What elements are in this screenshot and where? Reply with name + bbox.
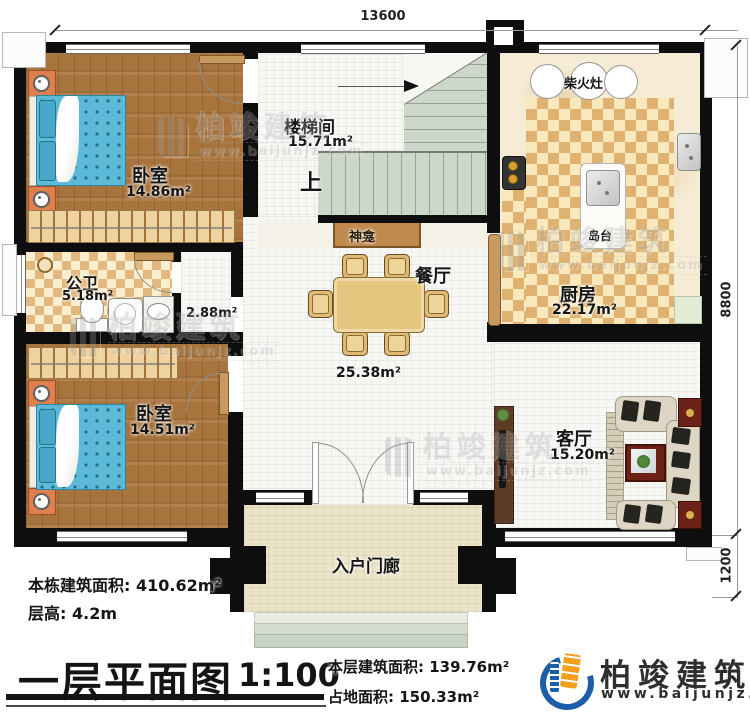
- gas-stove-burner2-icon: [508, 174, 518, 184]
- hallway-area: 2.88m²: [186, 306, 237, 321]
- bathroom-area: 5.18m²: [62, 289, 113, 304]
- floor-area-value: 139.76m²: [429, 658, 509, 676]
- floor-height-value: 4.2m: [72, 604, 117, 623]
- bathroom-sink-icon: [147, 303, 170, 320]
- brand-logo-icon: [540, 650, 594, 704]
- sofa-main-cushion2: [671, 451, 691, 469]
- side-table-bottom: [678, 501, 702, 529]
- bedroom2-lamp-top-icon: [33, 385, 50, 402]
- gas-stove-burner1-icon: [508, 161, 518, 171]
- kitchen-area: 22.17m²: [552, 302, 617, 318]
- porch-pillar-right-step: [458, 546, 482, 584]
- stairs-arrow-icon: [404, 80, 419, 92]
- wall-bath-bed2: [14, 332, 243, 344]
- living-area: 15.20m²: [550, 447, 615, 463]
- window-porch-right: [420, 492, 468, 503]
- bedroom1-lamp-bottom-icon: [33, 191, 50, 208]
- kitchen-island-sink: [586, 170, 620, 206]
- porch-pillar-left-bar: [230, 505, 244, 612]
- bedroom2-lamp-bottom-icon: [33, 493, 50, 510]
- floor-area-label: 本层建筑面积:: [328, 658, 424, 676]
- title-rule-heavy: [6, 694, 324, 700]
- sofa-main-cushion3: [671, 477, 691, 495]
- wall-kitchen-left-a: [487, 53, 500, 233]
- dim-right-main-value: 8800: [720, 266, 735, 334]
- bedroom1-pillow1: [39, 100, 56, 138]
- wall-right: [700, 42, 712, 547]
- stairs-direction-line: [338, 86, 404, 87]
- wood-stove-burner3: [604, 65, 638, 99]
- bedroom2-door-leaf: [219, 372, 229, 415]
- entry-door-leaf-right: [407, 442, 414, 504]
- bathroom-drain-icon: [37, 257, 53, 273]
- ac-platform-top-left: [2, 32, 46, 68]
- floor-area-line: 本层建筑面积: 139.76m²: [328, 656, 509, 677]
- wood-stove-burner1: [530, 64, 565, 99]
- sofa-bottom-cushion1: [623, 504, 641, 524]
- porch-pillar-left-step: [244, 546, 266, 584]
- stairs-lower-flight: [318, 153, 487, 215]
- bedroom2-wardrobe: [28, 347, 178, 379]
- window-living-bottom: [505, 531, 675, 542]
- porch-pillar-right-notch: [496, 558, 516, 594]
- dining-floor: [243, 215, 494, 505]
- kitchen-island-label: 岛台: [588, 227, 612, 244]
- window-bedroom2-bottom: [57, 531, 187, 542]
- brand-url: www.baijunjz.com: [601, 686, 750, 702]
- window-stairwell-top: [301, 44, 425, 54]
- dim-top-value: 13600: [343, 9, 423, 24]
- dining-area: 25.38m²: [336, 365, 401, 381]
- sofa-main-cushion1: [671, 427, 691, 445]
- kitchen-sink-right: [677, 133, 701, 171]
- kitchen-window-mat: [674, 296, 702, 324]
- wall-bed1-stair-a: [243, 53, 258, 59]
- bedroom2-area: 14.51m²: [130, 422, 195, 438]
- dining-chair-bottom1: [342, 331, 368, 356]
- porch-label: 入户门廊: [332, 552, 400, 577]
- dining-chair-right: [424, 290, 449, 318]
- dining-chair-top1: [342, 254, 368, 279]
- wall-kitchen-living-divider: [487, 324, 712, 342]
- wall-bed1-stair-b: [243, 103, 258, 217]
- footprint-label: 占地面积:: [328, 688, 394, 706]
- kitchen-door: [488, 234, 501, 326]
- bedroom1-pillow2: [39, 141, 56, 181]
- building-area-value: 410.62m²: [136, 576, 221, 595]
- tv-plant-icon: [497, 409, 509, 421]
- dim-line-top: [55, 30, 738, 31]
- sofa-bottom-cushion2: [645, 504, 663, 524]
- wall-hallway-right: [231, 242, 243, 297]
- sofa-top-cushion2: [643, 400, 662, 422]
- coffee-table-plant-icon: [637, 455, 650, 468]
- dining-chair-top2: [384, 254, 410, 279]
- brand-building-blue-icon: [550, 662, 559, 692]
- bedroom2-pillow1: [39, 409, 56, 445]
- stairs-rail: [318, 151, 488, 153]
- ac-platform-living: [686, 547, 722, 561]
- building-area-label: 本栋建筑面积:: [28, 576, 130, 595]
- bedroom2-pillow2: [39, 447, 56, 483]
- dining-label: 餐厅: [415, 262, 451, 288]
- bedroom1-wardrobe: [28, 210, 235, 243]
- dining-chair-bottom2: [384, 331, 410, 356]
- dim-line-right: [737, 46, 738, 598]
- wall-bed1-bath: [14, 242, 243, 252]
- wall-bed2-right-a: [228, 344, 243, 356]
- wood-stove-label: 柴火灶: [564, 73, 603, 92]
- title-rule-thin: [6, 705, 326, 707]
- dim-right-porch-value: 1200: [720, 536, 735, 596]
- tv-icon: [499, 430, 506, 488]
- sofa-top-cushion1: [621, 400, 640, 422]
- stairs-up-label: 上: [300, 165, 322, 197]
- dining-table: [333, 277, 425, 333]
- porch-step-3: [254, 634, 468, 648]
- side-table-top: [678, 398, 702, 427]
- floor-plan-canvas: 神龛 上: [0, 0, 750, 716]
- dining-chair-left: [308, 290, 333, 318]
- footprint-line: 占地面积: 150.33m²: [328, 686, 479, 707]
- floor-height-label: 层高:: [28, 604, 66, 623]
- scale-value: 1:100: [238, 656, 340, 694]
- bedroom1-lamp-top-icon: [33, 75, 50, 92]
- ac-platform-bath: [2, 244, 17, 316]
- window-kitchen-top: [539, 44, 659, 54]
- ac-platform-top-right: [704, 38, 748, 98]
- wall-stairwell-bottom: [318, 215, 500, 223]
- window-bathroom-left: [16, 255, 26, 313]
- washing-machine-drum-icon: [114, 303, 136, 325]
- building-area-line: 本栋建筑面积: 410.62m²: [28, 572, 221, 596]
- bedroom1-area: 14.86m²: [126, 184, 191, 200]
- floor-height-line: 层高: 4.2m: [28, 600, 117, 624]
- window-porch-left: [256, 492, 304, 503]
- window-bedroom1-top: [66, 44, 190, 54]
- stairwell-area: 15.71m²: [288, 134, 353, 150]
- footprint-value: 150.33m²: [399, 688, 479, 706]
- kitchen-tile-area2: [502, 190, 526, 324]
- shrine-cabinet: [333, 221, 421, 248]
- shrine-label: 神龛: [349, 226, 375, 245]
